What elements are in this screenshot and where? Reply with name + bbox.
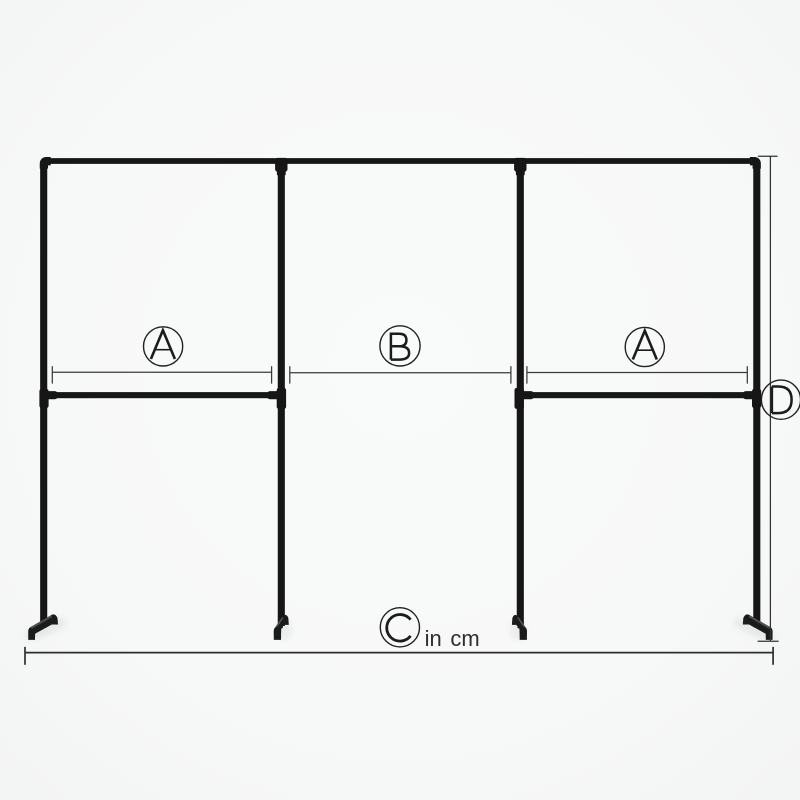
svg-text:in cm: in cm bbox=[425, 626, 480, 651]
